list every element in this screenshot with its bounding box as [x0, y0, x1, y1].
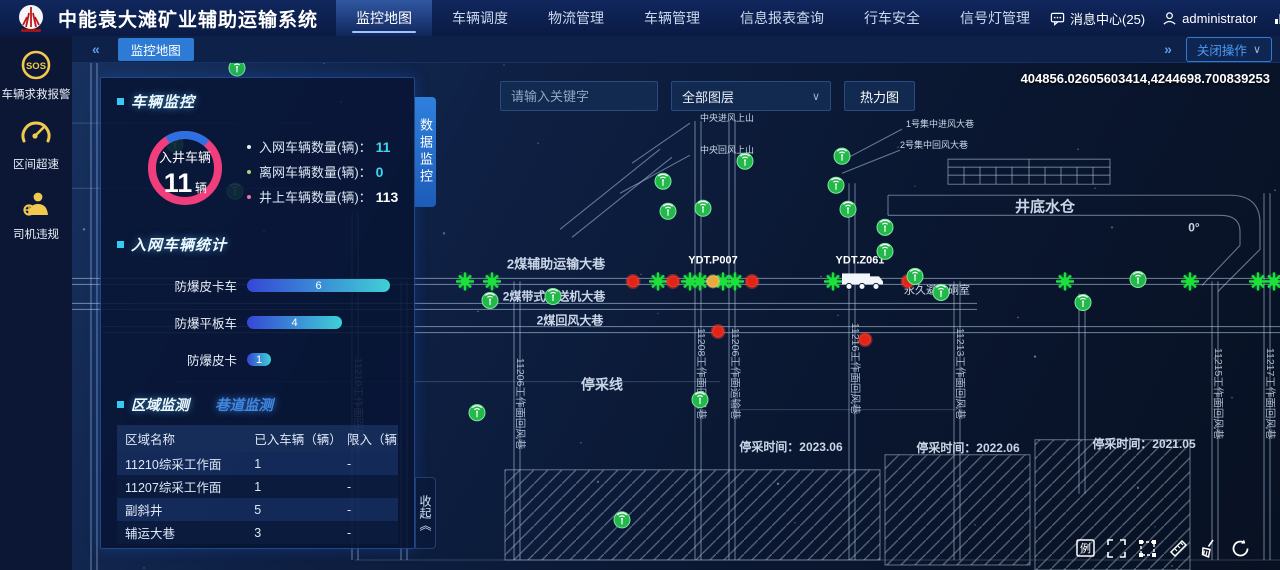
stat-label: 入网车辆数量(辆)： [259, 137, 372, 156]
beacon-marker[interactable] [877, 219, 893, 235]
chevron-down-icon: ∨ [1253, 43, 1261, 56]
vehicle-marker-orange[interactable] [707, 275, 719, 287]
map-toolbar: 全部图层 ∨ 热力图 [500, 81, 915, 111]
stat-row-2: 离网车辆数量(辆)：0 [247, 159, 398, 184]
layer-select-value: 全部图层 [682, 87, 734, 106]
nav-item-1[interactable]: 监控地图 [336, 0, 432, 36]
sidebar-item-label: 区间超速 [1, 156, 71, 172]
backend-icon [1274, 11, 1280, 25]
username-label: administrator [1182, 11, 1257, 26]
area-tab-label: 巷道监测 [215, 394, 273, 415]
chevron-down-icon: ∨ [812, 90, 820, 103]
tunnel-path [888, 215, 1240, 245]
sidebar-item-2[interactable]: 区间超速 [1, 118, 71, 172]
star-dot [640, 274, 641, 275]
sidebar-item-label: 司机违规 [1, 226, 71, 242]
table-row[interactable]: 11207综采工作面1- [117, 475, 398, 498]
user-icon [1162, 11, 1177, 26]
beacon-marker[interactable] [737, 153, 753, 169]
star-dot [914, 186, 915, 187]
beacon-marker[interactable] [1130, 271, 1146, 287]
section-bullet-icon [117, 98, 124, 105]
star-dot [1231, 397, 1232, 398]
collapse-left-button[interactable]: « [92, 41, 100, 57]
star-dot [1094, 188, 1095, 189]
tunnel-path [560, 149, 660, 229]
sos-icon: SOS [19, 48, 53, 82]
overspeed-icon [19, 118, 53, 152]
bar-row-2: 防爆平板车4 [101, 304, 414, 341]
map-label: 停采线 [581, 377, 623, 393]
stat-row-1: 入网车辆数量(辆)：11 [247, 134, 398, 159]
measure-icon[interactable] [1166, 536, 1190, 560]
star-dot [1077, 148, 1078, 149]
map-vertical-label: 11217工作面回风巷 [1264, 348, 1276, 440]
tunnel-path [620, 155, 690, 193]
beacon-marker[interactable] [840, 201, 856, 217]
star-dot [1274, 190, 1275, 191]
beacon-marker[interactable] [828, 177, 844, 193]
nav-item-5[interactable]: 信息报表查询 [720, 0, 844, 36]
area-tab-label: 区域监测 [131, 394, 189, 415]
stopped-vehicle-marker-red[interactable] [627, 275, 639, 287]
map-vertical-label: 11206工作面回风巷 [514, 358, 526, 450]
bar-fill: 1 [247, 353, 271, 366]
bar-value: 1 [256, 354, 262, 366]
stat-dot-icon [247, 145, 251, 149]
map-tools: 例 [1073, 536, 1252, 560]
star-dot [820, 276, 821, 277]
fullscreen-icon[interactable] [1104, 536, 1128, 560]
table-header-cell: 限入（辆） [339, 429, 398, 448]
collapse-right-button[interactable]: » [1164, 41, 1172, 57]
nav-item-6[interactable]: 行车安全 [844, 0, 940, 36]
star-dot [323, 63, 324, 64]
table-cell: 11210综采工作面 [117, 454, 246, 473]
measure-glyph [1167, 537, 1190, 560]
beacon-marker[interactable] [907, 268, 923, 284]
vehicle-marker-green[interactable] [649, 272, 667, 290]
clear-icon[interactable] [1197, 536, 1221, 560]
network-vehicle-bars: 防爆皮卡车6防爆平板车4防爆皮卡1 [101, 267, 414, 378]
table-header-cell: 已入车辆（辆） [246, 429, 339, 448]
vehicle-id-label: YDT.Z061 [836, 254, 885, 266]
refresh-glyph [1229, 537, 1252, 560]
star-dot [1017, 317, 1018, 318]
map-label: 0° [1188, 220, 1200, 234]
tunnel-path [572, 157, 672, 237]
table-row[interactable]: 11210综采工作面1- [117, 452, 398, 475]
vehicle-marker-green[interactable] [456, 272, 474, 290]
map-vertical-label: 11215工作面回风巷 [1212, 348, 1224, 440]
map-label: 2煤辅助运输大巷 [507, 256, 606, 271]
vehicle-data-panel: 车辆监控 入井车辆 11 辆 入网车辆数量(辆)：11离网车辆数量(辆)：0井上… [100, 77, 415, 549]
app-title: 中能袁大滩矿业辅助运输系统 [58, 5, 318, 32]
bar-label: 防爆平板车 [115, 313, 247, 332]
bar-track: 6 [247, 279, 390, 292]
tunnel-path [1202, 245, 1240, 285]
beacon-marker[interactable] [1075, 294, 1091, 310]
beacon-marker[interactable] [877, 243, 893, 259]
map-label: 1号集中进风大巷 [906, 118, 974, 129]
stat-dot-icon [247, 170, 251, 174]
table-cell: 11207综采工作面 [117, 477, 246, 496]
bar-track: 1 [247, 353, 390, 366]
nav-item-7[interactable]: 信号灯管理 [940, 0, 1050, 36]
sidebar-item-1[interactable]: SOS车辆求救报警 [1, 48, 71, 102]
main-nav: 监控地图车辆调度物流管理车辆管理信息报表查询行车安全信号灯管理 [336, 0, 1050, 36]
table-cell: - [339, 457, 398, 471]
section-bullet-icon [117, 241, 124, 248]
vehicle-marker-green[interactable] [824, 272, 842, 290]
tab-monitor-map[interactable]: 监控地图 [118, 38, 194, 61]
map-coordinates: 404856.02605603414,4244698.700839253 [1021, 71, 1270, 86]
left-sidebar: SOS车辆求救报警区间超速司机违规 [0, 36, 72, 570]
legend-icon[interactable]: 例 [1073, 536, 1097, 560]
tunnel-path [847, 129, 902, 158]
beacon-marker[interactable] [482, 292, 498, 308]
beacon-marker[interactable] [660, 203, 676, 219]
stat-value: 11 [376, 139, 391, 155]
topbar-right: 消息中心(25) administrator 前往后台 [1050, 9, 1280, 28]
table-cell: - [339, 480, 398, 494]
area-monitor-tabs: 区域监测巷道监测 [117, 394, 414, 415]
beacon-marker[interactable] [692, 392, 708, 408]
star-dot [580, 442, 581, 443]
table-header-row: 区域名称已入车辆（辆）限入（辆） [117, 425, 398, 452]
nav-item-4[interactable]: 车辆管理 [624, 0, 720, 36]
svg-text:SOS: SOS [26, 61, 46, 72]
box-select-glyph [1136, 537, 1159, 560]
table-cell: 1 [246, 480, 339, 494]
message-center-button[interactable]: 消息中心(25) [1050, 9, 1145, 28]
heatmap-button[interactable]: 热力图 [844, 81, 915, 111]
stat-value: 0 [376, 164, 384, 180]
vehicle-monitor-title: 车辆监控 [131, 91, 195, 112]
beacon-marker[interactable] [469, 405, 485, 421]
clear-glyph [1198, 537, 1221, 560]
star-dot [83, 228, 85, 230]
vehicle-marker-green[interactable] [483, 272, 501, 290]
beacon-marker[interactable] [834, 148, 850, 164]
map-label: 井底水仓 [1015, 197, 1076, 215]
close-operations-label: 关闭操作 [1197, 40, 1247, 59]
company-logo-icon [16, 3, 46, 33]
bar-track: 4 [247, 316, 390, 329]
table-cell: - [339, 526, 398, 540]
beacon-marker[interactable] [229, 63, 245, 76]
area-monitor-table: 区域名称已入车辆（辆）限入（辆）11210综采工作面1-11207综采工作面1-… [117, 425, 398, 544]
star-dot [460, 272, 461, 273]
vehicle-marker-green[interactable] [1265, 272, 1280, 290]
star-dot [477, 311, 478, 312]
table-cell: 3 [246, 526, 339, 540]
bar-label: 防爆皮卡车 [115, 276, 247, 295]
stat-value: 113 [376, 189, 399, 205]
stat-label: 离网车辆数量(辆)： [259, 162, 372, 181]
area-tab-2[interactable]: 巷道监测 [215, 394, 273, 415]
star-dot [1111, 226, 1113, 228]
gauge-value: 11 [164, 168, 193, 198]
box-select-icon[interactable] [1135, 536, 1159, 560]
legend-glyph: 例 [1074, 537, 1097, 560]
message-icon [1050, 11, 1065, 26]
map-label: 中央进风上山 [700, 112, 754, 123]
map-vertical-label: 11206工作面运输巷 [729, 328, 742, 420]
nav-item-2[interactable]: 车辆调度 [432, 0, 528, 36]
vehicle-marker-green[interactable] [1056, 272, 1074, 290]
goaf-hatched-region [505, 470, 880, 560]
star-dot [143, 567, 144, 568]
star-dot [443, 232, 445, 234]
table-row[interactable]: 辅运大巷3- [117, 521, 398, 544]
nav-item-3[interactable]: 物流管理 [528, 0, 624, 36]
map-label: 2煤回风大巷 [537, 313, 605, 328]
vehicle-marker-green[interactable] [1181, 272, 1199, 290]
stopped-vehicle-marker-red[interactable] [712, 326, 724, 338]
star-dot [837, 315, 838, 316]
entry-vehicle-gauge: 入井车辆 11 辆 [137, 120, 233, 221]
gauge-unit: 辆 [195, 181, 207, 195]
table-cell: 1 [246, 457, 339, 471]
beacon-marker[interactable] [545, 288, 561, 304]
data-monitor-vertical-tab[interactable]: 数据监控 [415, 97, 436, 207]
message-center-label: 消息中心(25) [1070, 9, 1145, 28]
driver-violation-icon [19, 188, 53, 222]
section-bullet-icon [117, 401, 124, 408]
star-dot [503, 64, 504, 65]
beacon-marker[interactable] [655, 173, 671, 189]
bar-fill: 4 [247, 316, 342, 329]
panel-collapse-vertical-tab[interactable]: 收起《 [415, 477, 436, 549]
tabbar: « 监控地图 » 关闭操作 ∨ [72, 36, 1280, 63]
area-tab-1[interactable]: 区域监测 [117, 394, 189, 415]
user-menu[interactable]: administrator [1162, 11, 1257, 26]
table-cell: - [339, 503, 398, 517]
table-header-cell: 区域名称 [117, 429, 246, 448]
stat-dot-icon [247, 195, 251, 199]
vehicle-id-label: YDT.P007 [688, 254, 737, 266]
stat-label: 井上车辆数量(辆)： [259, 187, 372, 206]
bar-value: 4 [291, 317, 297, 329]
svg-text:例: 例 [1080, 541, 1091, 555]
star-dot [897, 146, 898, 147]
sidebar-item-3[interactable]: 司机违规 [1, 188, 71, 242]
layer-select[interactable]: 全部图层 ∨ [671, 81, 831, 111]
map-label: 停采时间：2022.06 [916, 440, 1020, 455]
map-label: 停采时间：2021.05 [1092, 436, 1196, 451]
bar-label: 防爆皮卡 [115, 350, 247, 369]
beacon-marker[interactable] [695, 200, 711, 216]
gauge-label: 入井车辆 [159, 150, 211, 165]
vehicle-stats-list: 入网车辆数量(辆)：11离网车辆数量(辆)：0井上车辆数量(辆)：113 [247, 134, 398, 221]
tunnel-path [842, 150, 900, 173]
fullscreen-glyph [1105, 537, 1128, 560]
goaf-hatched-region [885, 455, 1030, 565]
search-input[interactable] [500, 81, 658, 111]
bar-row-3: 防爆皮卡1 [101, 341, 414, 378]
table-cell: 5 [246, 503, 339, 517]
star-dot [1034, 355, 1036, 357]
map-label: 停采时间：2023.06 [739, 439, 843, 454]
bar-value: 6 [315, 280, 321, 292]
network-stats-title: 入网车辆统计 [131, 234, 227, 255]
table-cell: 辅运大巷 [117, 523, 246, 542]
topbar: 中能袁大滩矿业辅助运输系统 监控地图车辆调度物流管理车辆管理信息报表查询行车安全… [0, 0, 1280, 36]
beacon-marker[interactable] [933, 284, 949, 300]
close-operations-button[interactable]: 关闭操作 ∨ [1186, 37, 1272, 62]
table-cell: 副斜井 [117, 500, 246, 519]
star-dot [537, 142, 538, 143]
star-dot [657, 313, 658, 314]
table-row[interactable]: 副斜井5- [117, 498, 398, 521]
map-area: 2煤辅助运输大巷2煤带式输送机大巷2煤回风大巷停采线停采时间：2023.06停采… [72, 63, 1280, 570]
map-vertical-label: 11213工作面回风巷 [954, 328, 966, 420]
refresh-icon[interactable] [1228, 536, 1252, 560]
stat-row-3: 井上车辆数量(辆)：113 [247, 184, 398, 209]
bar-row-1: 防爆皮卡车6 [101, 267, 414, 304]
stopped-vehicle-marker-red[interactable] [859, 334, 871, 346]
stopped-vehicle-marker-red[interactable] [746, 275, 758, 287]
stopped-vehicle-marker-red[interactable] [667, 275, 679, 287]
map-label: 2号集中回风大巷 [900, 139, 968, 150]
truck-icon[interactable] [842, 273, 883, 289]
bar-fill: 6 [247, 279, 390, 292]
beacon-marker[interactable] [614, 512, 630, 528]
tunnel-path [632, 123, 690, 163]
go-backend-button[interactable]: 前往后台 [1274, 9, 1280, 28]
sidebar-item-label: 车辆求救报警 [1, 86, 71, 102]
